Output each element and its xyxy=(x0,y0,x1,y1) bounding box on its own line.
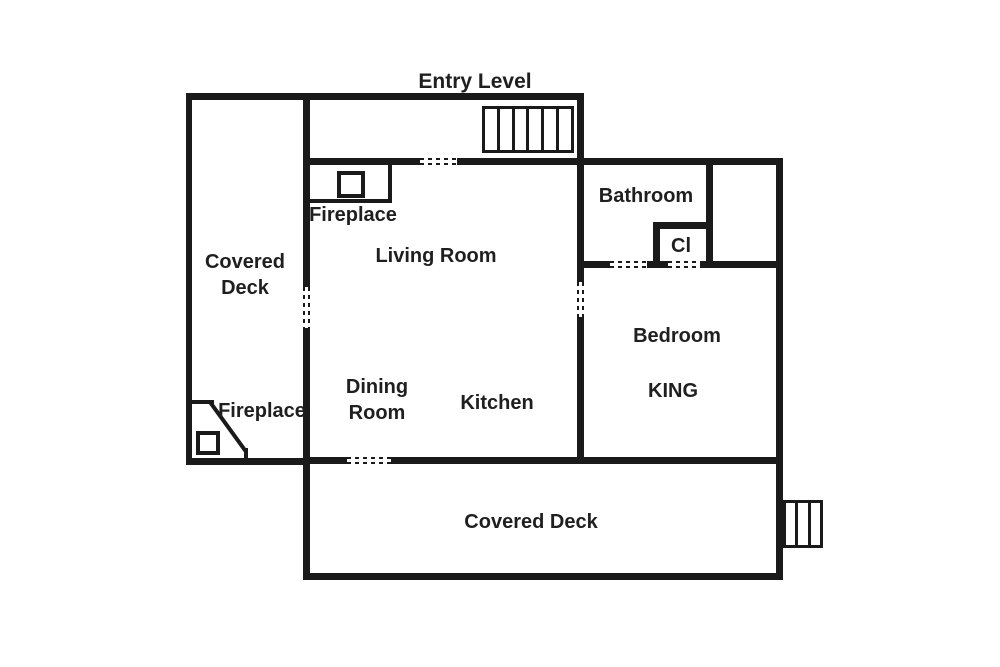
door-bedroom xyxy=(576,282,585,317)
door-deck-kitchen xyxy=(347,456,391,465)
fireplace-living-box-right xyxy=(388,165,392,203)
label-closet: Cl xyxy=(651,233,711,259)
stairs-deck xyxy=(783,500,823,548)
label-covered-deck-left: Covered Deck xyxy=(195,249,295,301)
wall-main-left xyxy=(303,93,310,580)
label-bedroom: Bedroom xyxy=(597,323,757,349)
wall-right xyxy=(776,158,783,580)
wall-top xyxy=(186,93,583,100)
door-bathroom xyxy=(610,260,647,269)
door-entry xyxy=(420,157,457,166)
fireplace-deck-insert-icon xyxy=(196,431,220,455)
wall-kitchen-bedroom xyxy=(577,93,584,464)
door-closet xyxy=(668,260,700,269)
page-title: Entry Level xyxy=(395,69,555,95)
label-fireplace-deck: Fireplace xyxy=(202,398,322,424)
door-deck-living xyxy=(302,287,311,328)
wall-deck2-bottom xyxy=(303,573,783,580)
stairs-entry xyxy=(482,106,574,153)
fireplace-deck-side-edge xyxy=(244,448,248,460)
floorplan-canvas: Entry Level Covered Deck Fireplace Livin… xyxy=(0,0,1000,667)
wall-deck-left xyxy=(186,93,192,465)
label-kitchen: Kitchen xyxy=(417,390,577,416)
label-dining-room: Dining Room xyxy=(332,374,422,426)
wall-deck-bottom xyxy=(186,458,310,465)
fireplace-living-insert-icon xyxy=(337,171,365,198)
wall-closet-top xyxy=(653,222,713,229)
label-fireplace-living: Fireplace xyxy=(293,202,413,228)
label-bed-size: KING xyxy=(593,378,753,404)
label-bathroom: Bathroom xyxy=(586,183,706,209)
label-living-room: Living Room xyxy=(356,243,516,269)
label-covered-deck-bottom: Covered Deck xyxy=(431,509,631,535)
